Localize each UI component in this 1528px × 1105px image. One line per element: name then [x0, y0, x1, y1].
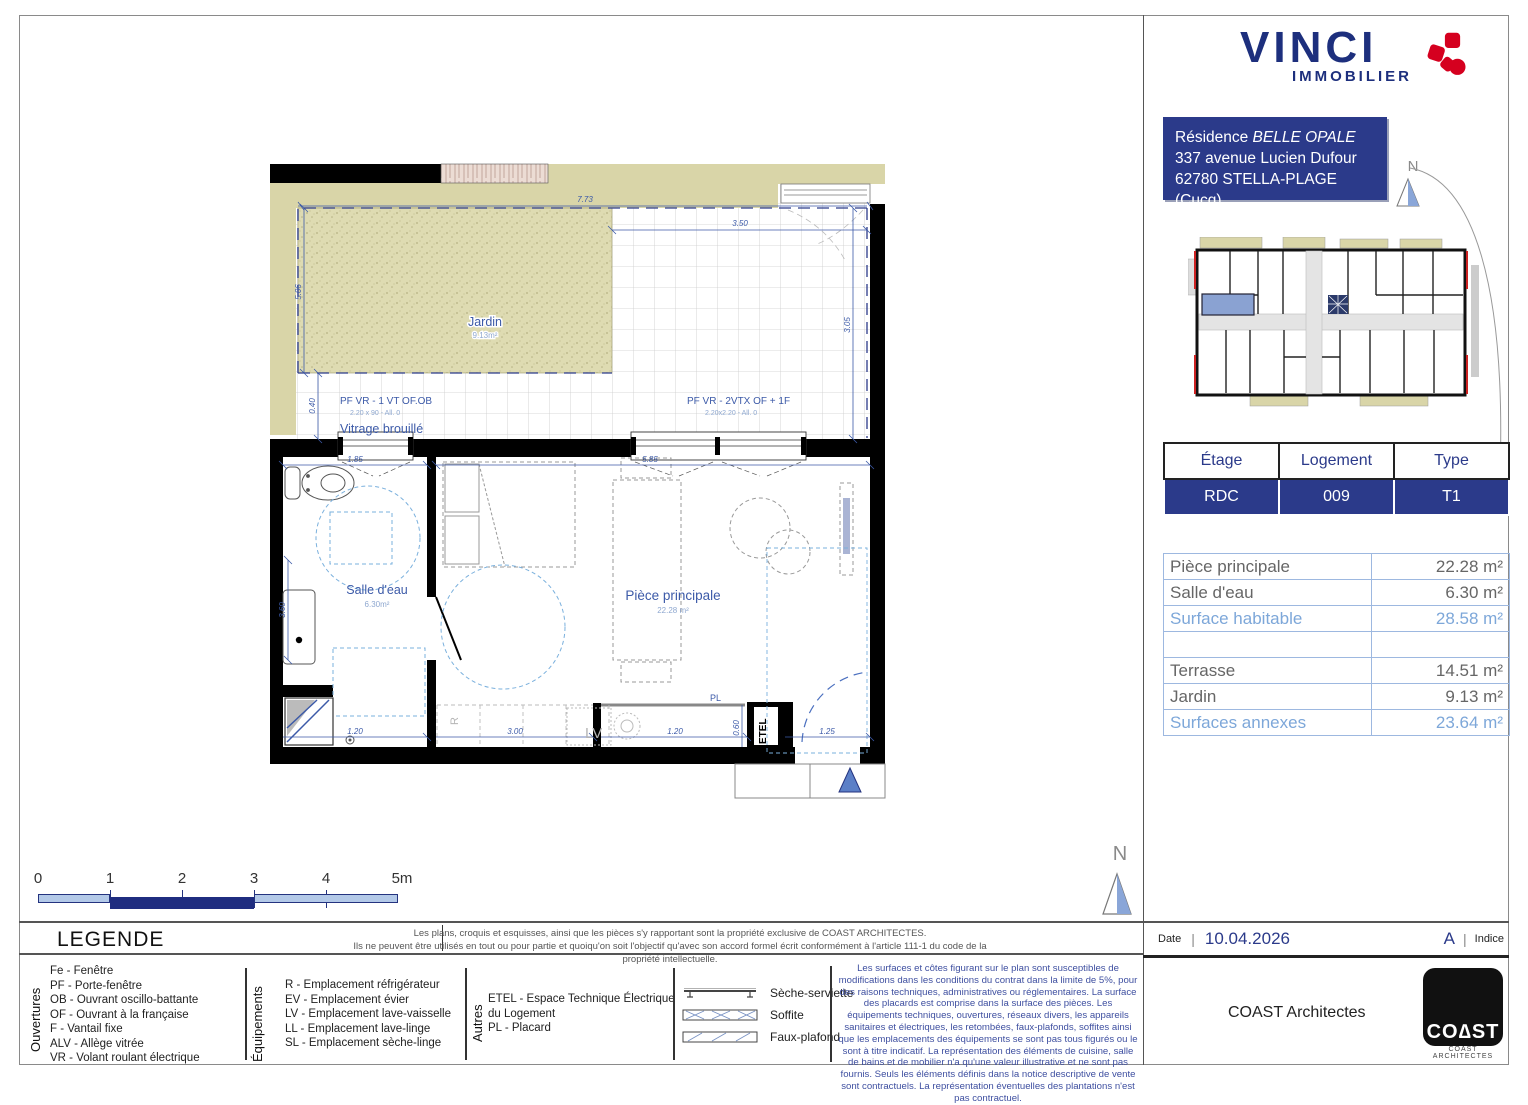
- val-etage: RDC: [1164, 479, 1279, 515]
- coast-logo: CO∆ST COAST ARCHITECTES: [1423, 968, 1503, 1060]
- svg-text:2.20x2.20 - All. 0: 2.20x2.20 - All. 0: [705, 410, 757, 417]
- table-row-empty: [1164, 632, 1510, 658]
- svg-text:1.85: 1.85: [347, 455, 363, 464]
- wall-bottom-right: [860, 747, 885, 764]
- svg-text:3.50: 3.50: [732, 219, 748, 228]
- legend-item: F - Vantail fixe: [50, 1022, 200, 1037]
- turning-circle: [441, 565, 565, 689]
- col-logement: Logement: [1279, 443, 1394, 479]
- wall-right-upper: [870, 204, 885, 439]
- svg-text:5.85: 5.85: [642, 455, 658, 464]
- shower-tray: [285, 698, 354, 745]
- val-logement: 009: [1279, 479, 1394, 515]
- kitchen: [437, 705, 640, 747]
- vinci-logo: VINCI IMMOBILIER: [1240, 28, 1470, 108]
- bed: [443, 462, 575, 567]
- window-2: [631, 432, 806, 476]
- svg-text:22.28 m²: 22.28 m²: [657, 606, 689, 615]
- scale-bar: 0 1 2 3 4 5m: [36, 870, 416, 912]
- svg-text:7.73: 7.73: [577, 195, 593, 204]
- entry-door-arc: [802, 672, 868, 742]
- coast-logo-wordmark: CO∆ST: [1423, 1021, 1503, 1044]
- table-row: Jardin9.13 m²: [1164, 684, 1510, 710]
- scale-2: 2: [178, 870, 186, 887]
- legend-title: LEGENDE: [57, 928, 164, 952]
- scale-5m: 5m: [392, 870, 413, 887]
- areas-table: Pièce principale22.28 m² Salle d'eau6.30…: [1163, 553, 1510, 736]
- legend-item: VR - Volant roulant électrique: [50, 1051, 200, 1066]
- legend-item: LV - Emplacement lave-vaisselle: [285, 1007, 451, 1022]
- lv-label: LV: [585, 725, 602, 742]
- col-type: Type: [1394, 443, 1509, 479]
- scale-3: 3: [250, 870, 258, 887]
- soffite-icon: [682, 1008, 758, 1022]
- legend-item: OF - Ouvrant à la française: [50, 1008, 200, 1023]
- legend-item: LL - Emplacement lave-linge: [285, 1022, 451, 1037]
- svg-text:0.40: 0.40: [308, 398, 317, 414]
- legend-group-autres: Autres: [470, 1004, 485, 1042]
- legend-item: OB - Ouvrant oscillo-battante: [50, 993, 200, 1008]
- legend-item: R - Emplacement réfrigérateur: [285, 978, 451, 993]
- beige-outer-band: [548, 164, 885, 184]
- val-type: T1: [1394, 479, 1509, 515]
- legend-item: EV - Emplacement évier: [285, 993, 451, 1008]
- legend-group-ouvertures: Ouvertures: [28, 988, 43, 1052]
- copyright-text: Les plans, croquis et esquisses, ainsi q…: [350, 927, 990, 966]
- vinci-wordmark: VINCI: [1240, 28, 1412, 68]
- legend-item: PL - Placard: [488, 1021, 675, 1036]
- scale-4: 4: [322, 870, 330, 887]
- svg-text:PF VR - 2VTX OF + 1F: PF VR - 2VTX OF + 1F: [687, 396, 790, 407]
- legend-item: du Logement: [488, 1007, 675, 1022]
- beige-top-band: [296, 183, 778, 208]
- wall-right: [870, 439, 885, 764]
- svg-text:1.20: 1.20: [347, 727, 363, 736]
- wall-left: [270, 439, 283, 764]
- window-1: [338, 432, 413, 476]
- legend-symbols: Sèche-serviette Soffite Faux-plafond: [682, 982, 853, 1048]
- legend-item: PF - Porte-fenêtre: [50, 979, 200, 994]
- round-table-chairs: [730, 498, 810, 574]
- symbol-label: Soffite: [770, 1008, 804, 1022]
- beige-left-band: [270, 183, 296, 435]
- residence-name: BELLE OPALE: [1253, 129, 1356, 146]
- faux-plafond-icon: [682, 1030, 758, 1044]
- date-label: Date: [1158, 933, 1181, 945]
- disclaimer-text: Les surfaces et côtes figurant sur le pl…: [838, 963, 1138, 1105]
- scale-0: 0: [34, 870, 42, 887]
- seche-serviette-icon: [682, 986, 758, 1000]
- svg-text:3.05: 3.05: [843, 317, 852, 333]
- legend-equipements-items: R - Emplacement réfrigérateur EV - Empla…: [285, 978, 451, 1051]
- svg-text:3.60: 3.60: [278, 602, 287, 618]
- svg-text:PF VR - 1 VT OF.OB: PF VR - 1 VT OF.OB: [340, 396, 432, 407]
- svg-text:9.13m²: 9.13m²: [473, 331, 498, 340]
- svg-text:1.20: 1.20: [667, 727, 683, 736]
- wall-top-left: [270, 164, 441, 183]
- piece-principale-label: Pièce principale: [625, 588, 720, 603]
- pl-label: PL: [710, 693, 721, 703]
- highlighted-unit: [1202, 294, 1254, 315]
- architect-name: COAST Architectes: [1228, 1004, 1366, 1022]
- table-row-highlight: Surfaces annexes23.64 m²: [1164, 710, 1510, 736]
- svg-text:Vitrage brouillé: Vitrage brouillé: [340, 422, 423, 436]
- svg-text:1.25: 1.25: [819, 727, 835, 736]
- svg-text:6.30m²: 6.30m²: [365, 600, 390, 609]
- vinci-mark-icon: [1418, 28, 1470, 86]
- jardin-area: [298, 208, 612, 373]
- scale-1: 1: [106, 870, 114, 887]
- etel-label: ETEL: [758, 718, 769, 744]
- address-block: Résidence BELLE OPALE 337 avenue Lucien …: [1163, 117, 1387, 200]
- address-line1: 337 avenue Lucien Dufour: [1175, 148, 1375, 169]
- date-indice-row: Date | 10.04.2026 A | Indice: [1158, 929, 1508, 949]
- indice-value: A: [1444, 929, 1455, 949]
- jardin-label: Jardin: [468, 315, 502, 329]
- legend-item: Fe - Fenêtre: [50, 964, 200, 979]
- legend-item: ALV - Allège vitrée: [50, 1037, 200, 1052]
- legend-ouvertures-items: Fe - Fenêtre PF - Porte-fenêtre OB - Ouv…: [50, 964, 200, 1066]
- unit-table: Étage Logement Type RDC 009 T1: [1163, 442, 1510, 516]
- salle-deau-label: Salle d'eau: [346, 583, 408, 597]
- table-row: Terrasse14.51 m²: [1164, 658, 1510, 684]
- residence-prefix: Résidence: [1175, 129, 1253, 146]
- coast-logo-subtext: COAST ARCHITECTES: [1423, 1046, 1503, 1060]
- north-letter: N: [1095, 843, 1145, 866]
- brick-hatch-strip: [441, 164, 548, 183]
- dining-table: [613, 458, 681, 682]
- indice-label: Indice: [1475, 933, 1504, 945]
- address-line2: 62780 STELLA-PLAGE (Cucq): [1175, 169, 1375, 211]
- date-value: 10.04.2026: [1205, 929, 1290, 949]
- table-row: Pièce principale22.28 m²: [1164, 554, 1510, 580]
- tv-console: [840, 483, 853, 575]
- legend-autres-items: ETEL - Espace Technique Électrique du Lo…: [488, 992, 675, 1036]
- north-triangle-icon: [1095, 866, 1139, 918]
- col-etage: Étage: [1164, 443, 1279, 479]
- wall-bottom: [270, 747, 795, 764]
- legend-group-equipements: Équipements: [250, 986, 265, 1062]
- floor-plan: 7.73 3.50 5.06 0.40 3.05 1.85 5.85 3.60 …: [255, 140, 915, 800]
- svg-text:2.20 x 90 - All. 0: 2.20 x 90 - All. 0: [350, 410, 400, 417]
- svg-text:0.60: 0.60: [732, 720, 741, 736]
- svg-text:3.00: 3.00: [507, 727, 523, 736]
- toilet: [285, 466, 354, 500]
- porch: [735, 764, 885, 798]
- legend-item: ETEL - Espace Technique Électrique: [488, 992, 675, 1007]
- site-plan-minimap: [1188, 237, 1488, 407]
- r-label: R: [449, 717, 461, 725]
- table-row: Salle d'eau6.30 m²: [1164, 580, 1510, 606]
- north-arrow-bottom: N: [1095, 843, 1145, 923]
- table-row-highlight: Surface habitable28.58 m²: [1164, 606, 1510, 632]
- svg-text:5.06: 5.06: [294, 284, 303, 300]
- legend-item: SL - Emplacement sèche-linge: [285, 1036, 451, 1051]
